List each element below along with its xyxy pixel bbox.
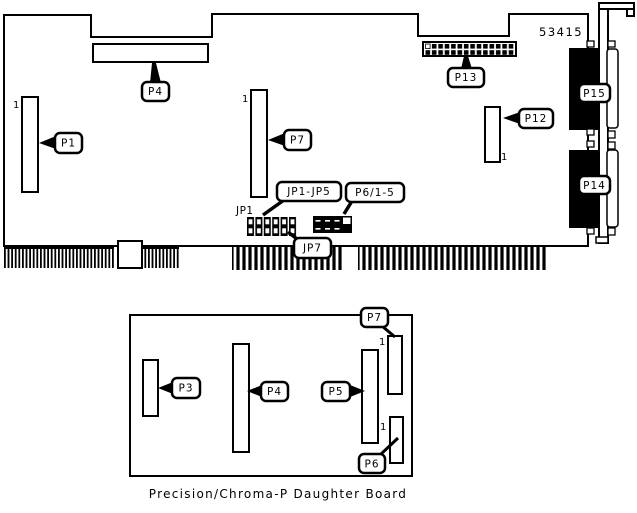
svg-text:P5: P5 bbox=[328, 386, 343, 398]
svg-text:P14: P14 bbox=[583, 180, 606, 192]
edge-connector-bar-left bbox=[4, 245, 114, 249]
svg-text:P12: P12 bbox=[525, 113, 548, 125]
bracket-hook-stub bbox=[627, 9, 634, 16]
connector-p1 bbox=[22, 97, 38, 192]
edge-connector-bar-mid bbox=[143, 245, 179, 249]
daughter-p6-pin1-marker: 1 bbox=[380, 422, 386, 433]
daughter-connector-p4 bbox=[233, 344, 249, 452]
svg-text:P13: P13 bbox=[455, 72, 478, 84]
svg-text:P4: P4 bbox=[148, 86, 163, 98]
callout-p14: P14 bbox=[579, 176, 610, 194]
connector-p4 bbox=[93, 44, 208, 62]
svg-text:P1: P1 bbox=[61, 138, 76, 150]
board-layout-diagram: 53415 JP1 1 1 1 P4 P1 P7 P13 bbox=[0, 0, 637, 513]
svg-text:P7: P7 bbox=[290, 135, 305, 147]
jumper-block-p6 bbox=[313, 216, 352, 233]
connector-p12 bbox=[485, 107, 500, 162]
main-board: 53415 JP1 1 1 1 P4 P1 P7 P13 bbox=[4, 3, 634, 270]
edge-connector-fingers-left bbox=[4, 247, 114, 268]
jp1-silkscreen-label: JP1 bbox=[235, 205, 254, 217]
callout-p15: P15 bbox=[579, 84, 610, 102]
svg-text:P3: P3 bbox=[178, 383, 193, 395]
comb-connector-right bbox=[358, 247, 547, 270]
daughter-p7-pin1-marker: 1 bbox=[379, 337, 385, 348]
svg-text:P7: P7 bbox=[367, 312, 382, 324]
p12-pin1-marker: 1 bbox=[501, 152, 507, 163]
svg-text:P4: P4 bbox=[267, 386, 282, 398]
p13-pin1-marker bbox=[426, 44, 431, 49]
connector-p7 bbox=[251, 90, 267, 197]
diagram-canvas: 53415 JP1 1 1 1 P4 P1 P7 P13 bbox=[0, 0, 637, 513]
connector-p13-header bbox=[423, 42, 516, 56]
daughter-board-caption: Precision/Chroma-P Daughter Board bbox=[149, 487, 407, 501]
daughter-board: 1 1 P3 P4 P5 P7 P6 Precision/Chroma-P Da bbox=[130, 308, 412, 501]
svg-text:P6/1-5: P6/1-5 bbox=[355, 187, 395, 199]
svg-text:P15: P15 bbox=[583, 88, 606, 100]
edge-connector-fingers-mid bbox=[143, 247, 179, 268]
daughter-connector-p5 bbox=[362, 350, 378, 443]
daughter-connector-p3 bbox=[143, 360, 158, 416]
edge-connector-key-tab bbox=[118, 241, 142, 268]
svg-text:P6: P6 bbox=[364, 459, 379, 471]
bracket-foot bbox=[596, 237, 608, 243]
p1-pin1-marker: 1 bbox=[13, 100, 19, 111]
p6-pin1-cell bbox=[343, 218, 351, 225]
daughter-connector-p7 bbox=[388, 336, 402, 394]
board-id-label: 53415 bbox=[539, 25, 583, 39]
p7-pin1-marker: 1 bbox=[242, 94, 248, 105]
svg-text:JP1-JP5: JP1-JP5 bbox=[286, 186, 331, 198]
svg-text:JP7: JP7 bbox=[302, 243, 322, 255]
